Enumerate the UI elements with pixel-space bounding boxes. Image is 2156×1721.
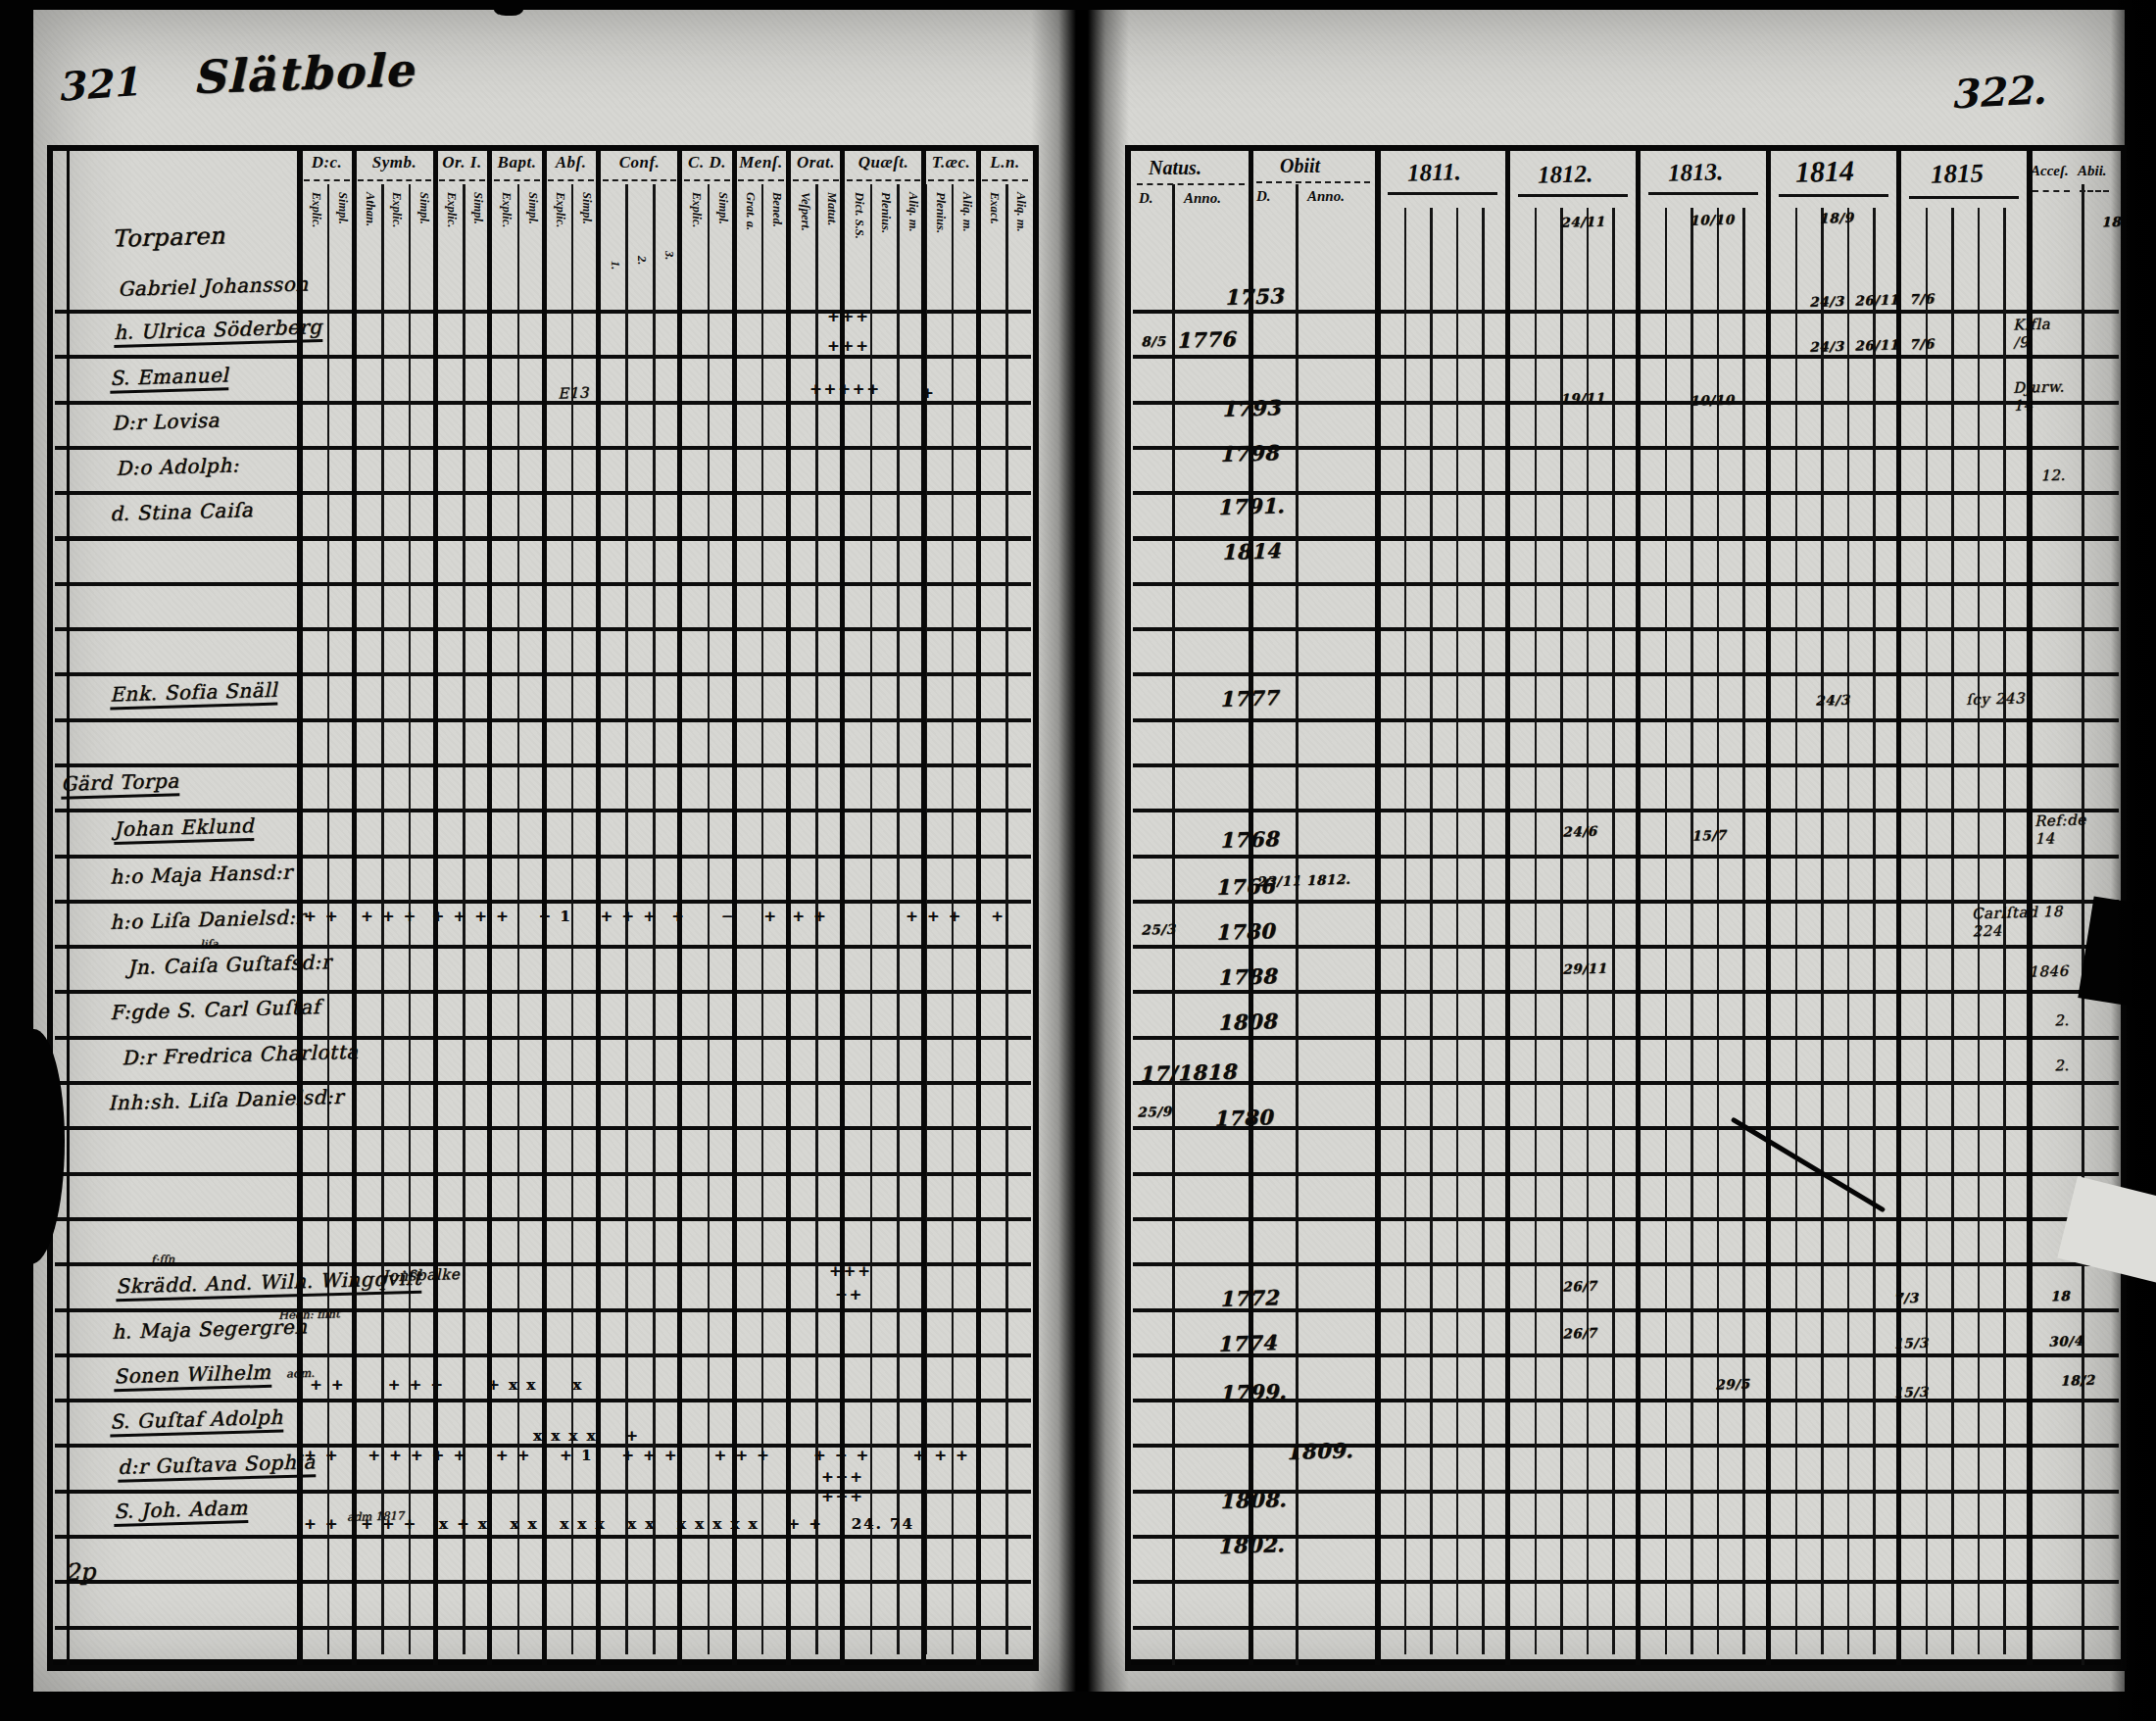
column-group-label: T.æc. [924,153,978,172]
obiit-header: Obiit [1280,155,1320,177]
column-group-label: Menſ. [734,153,788,172]
column-subheader: 2. [634,256,649,265]
date-entry: 24/3 [1815,692,1850,709]
row-name: Sonen Wilhelm [114,1360,271,1392]
scan-edge-right [2111,0,2156,1721]
column-group: Quæſt. Dict. S.S. Plenius. Aliq. m. [843,153,924,310]
acces-entry: Kifla /9 [2013,315,2051,351]
column-subheader: Explic. [499,192,514,227]
mark-row: + [921,384,936,402]
natus-year: 1753 [1224,283,1285,310]
natus-header: Natus. [1149,157,1201,179]
mark-row: +++ [821,1488,864,1505]
natus-year: 1793 [1221,395,1282,421]
date-entry: 7/3 [1893,1290,1919,1306]
scan-blob [494,0,523,16]
scan-edge-top [0,0,2156,10]
natus-year: 1780 [1213,1105,1274,1131]
header-rule [1648,192,1758,195]
mark-row: +++ [829,1262,872,1280]
header-rule [1909,196,2019,199]
date-entry: 29/11 [1562,959,1607,976]
year-header: 1812. [1538,160,1593,188]
mark-row: + + + + + + x x x [310,1376,583,1394]
row-name: d:r Guſtava Sophia [118,1450,317,1483]
column-subheader: Simpl. [335,192,350,224]
row-name: S. Joh. Adam [114,1496,248,1527]
natus-day: 25/9 [1137,1104,1172,1120]
binding-shadow [1031,6,1129,1694]
column-group-label: Or. I. [435,153,489,172]
header-dashes [603,179,676,181]
margin-note: Hedn: flint [278,1306,340,1322]
row-name: h. Ulrica Söderberg [114,315,322,348]
abiit-divider [2082,184,2084,1665]
header-dashes [439,179,485,181]
column-subheader: Simpl. [470,192,485,224]
natus-year: 1788 [1217,963,1278,990]
natus-year: 1776 [1176,326,1237,353]
mark-row: +++ [821,1468,864,1486]
mark-row: + + + + + + + + + + 1 + + + + − + + + + … [304,908,1005,925]
column-subheader: Matut. [824,192,839,225]
d-subheader: D. [1139,190,1153,207]
margin-note: Jonsbalke [382,1265,461,1285]
mark-row: x x x x + [533,1427,640,1445]
abiit-entry: Djurw. 14 [2013,377,2066,414]
margin-note: liſa [200,937,219,952]
column-group-label: Orat. [789,153,843,172]
column-group-label: Abſ. [544,153,598,172]
margin-note: f:ſſn [151,1253,174,1267]
column-subheader: Grat. a. [743,192,758,230]
row-name: Torparen [112,221,225,252]
column-group-label: Conf. [599,153,680,172]
date-entry: 18/9 [1819,210,1854,226]
natus-year: 1798 [1219,440,1280,467]
abiit-entry: Ref:de 14 [2034,811,2087,847]
column-subheader: Plenius. [878,192,893,233]
date-entry: 24/11 [1560,213,1605,229]
right-page-number: 322. [1949,66,2047,117]
mark-row: + + + + + + + + + + 1 + + + + + + + + + … [304,1447,970,1464]
natus-year: 17/1818 [1139,1059,1237,1087]
date-entry: 15/3 [1893,1335,1929,1352]
column-group-label: Symb. [354,153,435,172]
row-name: Gärd Torpa [61,768,179,799]
bottom-note: 2p [65,1558,97,1587]
abiit-entry: 18 [2050,1288,2070,1304]
abiit-entry: 1846 [2029,961,2069,980]
header-rule [1388,192,1497,195]
natus-year: 1802. [1217,1532,1285,1558]
year-header: 1815 [1931,158,1984,189]
header-dashes [494,179,540,181]
column-group: Menſ. Grat. a. Bened. [734,153,788,310]
column-group: L.n. Exact. Aliq. m. [978,153,1032,310]
row-name: Johan Eklund [114,813,255,845]
row-name: Gabriel Johansson [118,271,309,300]
abiit-entry: 30/4 [2048,1333,2083,1350]
row-name: d. Stina Caiſa [110,498,254,525]
column-subheader: Explic. [553,192,567,227]
margin-note: E13 [558,384,589,403]
column-subheader: Simpl. [579,192,594,224]
date-entry: 19/11 [1560,389,1605,406]
obiit-date: 23/11 1812. [1256,871,1350,890]
header-dashes [847,179,920,181]
column-subheader: 1. [608,261,622,270]
header-dashes [1256,181,1370,183]
column-group-label: D:c. [300,153,354,172]
column-subheader: Explic. [309,192,323,227]
column-subheader: Aliq. m. [1013,192,1028,232]
year-block-divider [1636,151,1641,1665]
date-entry: 15/3 [1893,1384,1929,1401]
row-name: D:r Lovisa [112,408,220,434]
natus-year: 1772 [1219,1285,1280,1311]
column-subheader: Veſpert. [798,192,812,231]
grid-collines [1378,208,2030,1654]
natus-year: 1780 [1215,918,1276,945]
row-name: Enk. Sofia Snäll [110,678,278,711]
mark-row: +++++ [809,380,881,398]
date-entry: 15/7 [1691,827,1727,844]
column-group: C. D. Explic. Simpl. [680,153,734,310]
header-dashes [2080,190,2109,192]
acces-header: Acceſ. [2031,163,2069,179]
column-subheader: Explic. [389,192,404,227]
column-group: Symb. Athan. Explic. Simpl. [354,153,435,310]
left-page-number: 321 [55,58,140,110]
column-subheader: Explic. [689,192,704,227]
page-title: Slätbole [191,43,416,104]
column-group: Orat. Veſpert. Matut. [789,153,843,310]
mark-row: + + + + + x + x x x x x x x x x x x x x … [304,1515,914,1533]
column-subheader: Plenius. [933,192,948,233]
header-dashes [358,179,431,181]
column-subheader: Bened. [769,192,784,227]
abiit-entry: Carlſtad 18 224 [1972,903,2064,941]
mark-row: +++ [827,337,870,355]
column-subheader: Explic. [444,192,459,227]
header-dashes [982,179,1028,181]
scan-edge-left [0,0,33,1721]
natus-year: 1814 [1221,538,1282,565]
natus-year: 1808 [1217,1008,1278,1035]
d-subheader: D. [1256,188,1271,205]
column-subheader: Simpl. [416,192,431,224]
year-header: 1811. [1407,158,1462,186]
year-block-divider [1896,151,1901,1665]
column-subheader: Simpl. [715,192,730,224]
column-group: Abſ. Explic. Simpl. [544,153,598,310]
natus-year: 1768 [1219,826,1280,853]
date-entry: 24/6 [1562,823,1597,840]
date-entry: 29/5 [1715,1376,1750,1393]
column-group-label: Quæſt. [843,153,924,172]
natus-year: 1808. [1219,1487,1287,1513]
year-block-divider [1766,151,1771,1665]
natus-year: 1799. [1219,1379,1287,1405]
natus-year: 1774 [1217,1330,1278,1356]
header-dashes [793,179,839,181]
abiit-entry: 12. [2040,467,2066,485]
column-subheader: Aliq. m. [959,192,974,232]
column-subheader: Athan. [363,192,377,226]
natus-day: 8/5 [1141,333,1166,350]
obiit-year: 1809. [1286,1438,1353,1464]
header-dashes [928,179,974,181]
column-subheader: 3. [661,251,676,260]
header-dashes [738,179,784,181]
year-block-divider [1375,151,1381,1665]
abiit-entry: 18/2 [2060,1372,2095,1389]
natus-year: 1791. [1217,493,1285,519]
acces-entry: ſcy 243 [1966,689,2026,709]
natus-day: 25/3 [1141,921,1176,938]
header-dashes [2033,190,2070,192]
abiit-entry: 2. [2054,1057,2070,1074]
year-block-divider [1505,151,1510,1665]
scanned-parish-register: 321 322. Slätbole D:c. Explic. Simpl. Sy… [0,0,2156,1721]
margin-rule [67,151,70,1665]
column-group: Or. I. Explic. Simpl. [435,153,489,310]
date-entry: 26/7 [1562,1278,1597,1295]
column-subheader: Exact. [987,192,1002,224]
left-page: D:c. Explic. Simpl. Symb. Athan. Explic.… [47,145,1039,1671]
scan-edge-bottom [0,1692,2156,1721]
column-group-label: L.n. [978,153,1032,172]
column-subheader: Aliq. m. [906,192,920,232]
column-group: Conf. 1. 2. 3. [599,153,680,310]
column-group: T.æc. Plenius. Aliq. m. [924,153,978,310]
date-entry: 10/10 [1690,391,1735,408]
right-page: Natus. Obiit D. Anno. D. Anno. 1811. 181… [1125,145,2127,1671]
abiit-header: Abii. [2078,163,2107,179]
header-rule [1779,194,1888,197]
bottom-border [1131,1659,2121,1665]
row-name: D:o Adolph: [116,453,240,480]
row-name: S. Guſtaf Adolph [110,1405,283,1438]
header-dashes [1137,183,1245,185]
column-group-label: C. D. [680,153,734,172]
column-subheader: Dict. S.S. [852,192,866,239]
column-group-label: Bapt. [490,153,544,172]
mark-row: +++ [827,308,870,325]
date-entry: 10/10 [1690,211,1735,227]
year-header: 1813. [1668,158,1724,186]
header-dashes [684,179,730,181]
header-dashes [304,179,350,181]
column-subheader: Simpl. [525,192,540,224]
header-dashes [548,179,594,181]
natus-year: 1777 [1219,685,1280,712]
natus-obiit-divider [1249,151,1253,1665]
mark-row: ++ [835,1286,863,1303]
header-rule [1518,194,1628,197]
abiit-entry: 2. [2054,1011,2070,1029]
anno-subheader: Anno. [1307,188,1345,205]
year-header: 1814 [1795,154,1855,189]
row-name: S. Emanuel [110,363,229,393]
column-group: Bapt. Explic. Simpl. [490,153,544,310]
anno-subheader: Anno. [1184,190,1221,207]
date-entry: 26/7 [1562,1325,1597,1342]
